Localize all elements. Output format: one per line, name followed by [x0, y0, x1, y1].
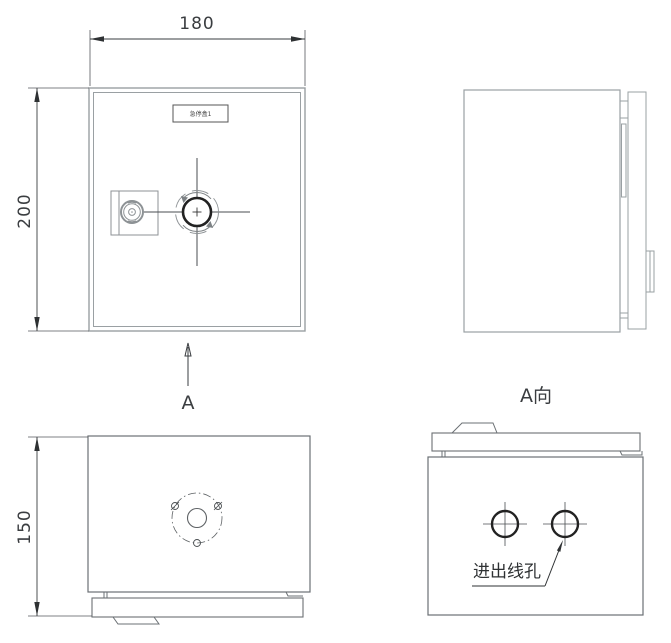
key-lock-plate — [111, 191, 158, 235]
side-view-body — [464, 90, 620, 332]
section-arrow-letter: A — [182, 392, 195, 414]
leader-arrowhead — [557, 540, 563, 552]
dim150-arrow-top — [34, 437, 39, 451]
key-lock-top-notch — [128, 202, 137, 203]
gland-center-hole — [188, 509, 207, 528]
side-view-door-edge — [628, 92, 646, 329]
dim150-value: 150 — [15, 509, 35, 544]
drawing-svg: 急停盒1 — [0, 0, 671, 643]
dim200-arrow-bottom — [34, 317, 39, 331]
top-mount-tab — [452, 423, 497, 433]
key-lock — [111, 191, 158, 235]
wire-hole-left — [483, 502, 527, 546]
wire-hole-right — [543, 502, 587, 546]
bottom-view-body — [88, 436, 310, 592]
a-view-body — [428, 457, 643, 615]
top-base-plate — [432, 433, 640, 451]
key-center-dot — [131, 211, 133, 213]
dim200-value: 200 — [15, 193, 35, 228]
side-view — [464, 90, 654, 332]
a-direction-view — [428, 423, 643, 615]
key-lock-bottom-notch — [128, 222, 137, 223]
dim150-arrow-bottom — [34, 602, 39, 616]
dimension-200: 200 — [15, 88, 89, 331]
technical-drawing-canvas: 急停盒1 — [0, 0, 671, 643]
plate-clip-a-right — [620, 451, 642, 455]
dim180-value: 180 — [179, 14, 214, 34]
nameplate-text: 急停盒1 — [190, 110, 212, 118]
dim180-arrow-right — [291, 36, 305, 41]
bolt-circle-centerline — [172, 493, 222, 543]
wire-holes-note: 进出线孔 — [473, 562, 541, 582]
estop-button — [144, 158, 250, 266]
dimension-180: 180 — [90, 14, 305, 86]
dim200-arrow-top — [34, 88, 39, 102]
nameplate: 急停盒1 — [173, 105, 228, 122]
dim180-arrow-left — [90, 36, 104, 41]
front-view: 急停盒1 — [15, 14, 305, 414]
bottom-view — [88, 436, 310, 624]
hinge-pin — [622, 124, 627, 197]
mount-hole-left-slash — [171, 502, 179, 510]
bottom-mount-tab — [113, 617, 159, 624]
direction-view-label: A向 — [520, 385, 552, 407]
bottom-base-plate — [92, 598, 303, 617]
gland-hole-group — [171, 493, 222, 547]
section-arrow-a: A — [182, 343, 195, 414]
dimension-150: 150 — [15, 437, 92, 616]
mount-hole-right-slash — [214, 502, 222, 510]
